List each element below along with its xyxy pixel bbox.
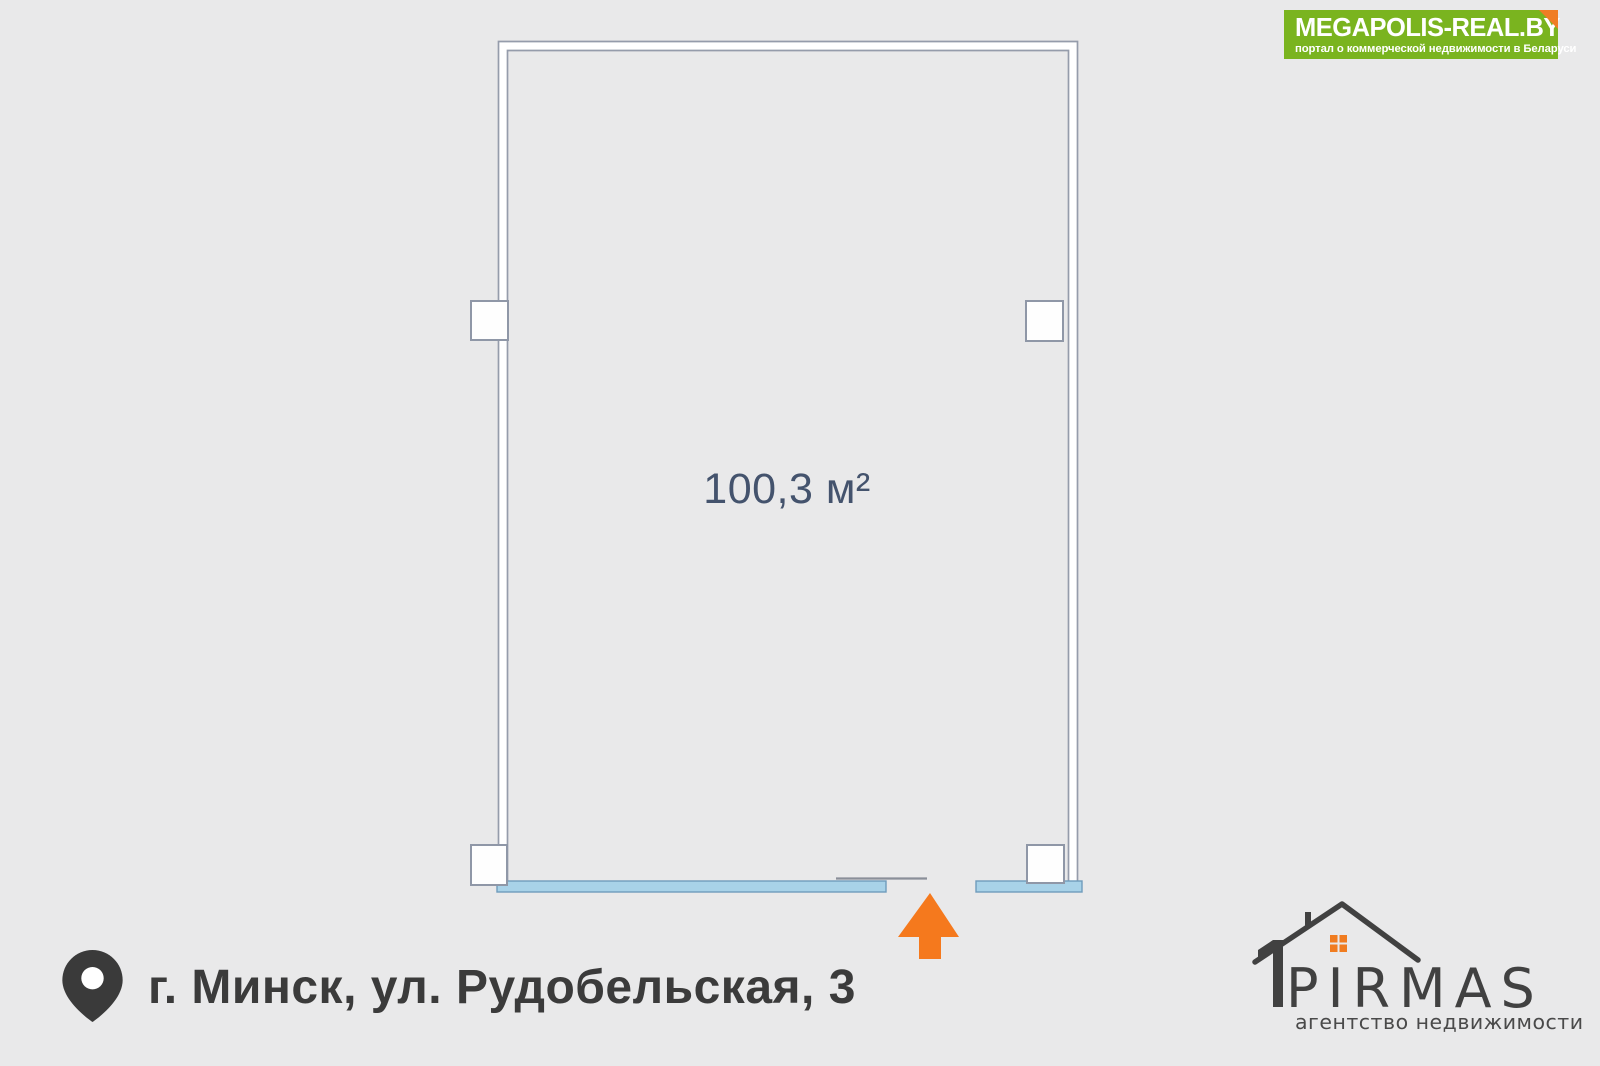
portal-banner-title: MEGAPOLIS-REAL.BY <box>1295 14 1552 42</box>
window-band-left <box>497 881 886 892</box>
agency-tagline: агентство недвижимости <box>1295 1010 1584 1034</box>
portal-banner: MEGAPOLIS-REAL.BY портал о коммерческой … <box>1284 10 1558 59</box>
portal-banner-subtitle: портал о коммерческой недвижимости в Бел… <box>1295 42 1552 56</box>
logo-numeral-one <box>1273 940 1283 1007</box>
house-window-icon <box>1330 935 1347 952</box>
entrance-arrow-icon <box>898 893 959 959</box>
agency-logo: PIRMAS агентство недвижимости <box>1240 868 1590 1038</box>
window-square-top-left <box>471 301 508 340</box>
window-square-bottom-left <box>471 845 507 885</box>
window-square-top-right <box>1026 301 1063 341</box>
map-pin-icon <box>62 950 123 1022</box>
room-area-label: 100,3 м² <box>637 464 937 514</box>
address-text: г. Минск, ул. Рудобельская, 3 <box>148 960 856 1016</box>
window-square-bottom-right <box>1027 845 1064 883</box>
